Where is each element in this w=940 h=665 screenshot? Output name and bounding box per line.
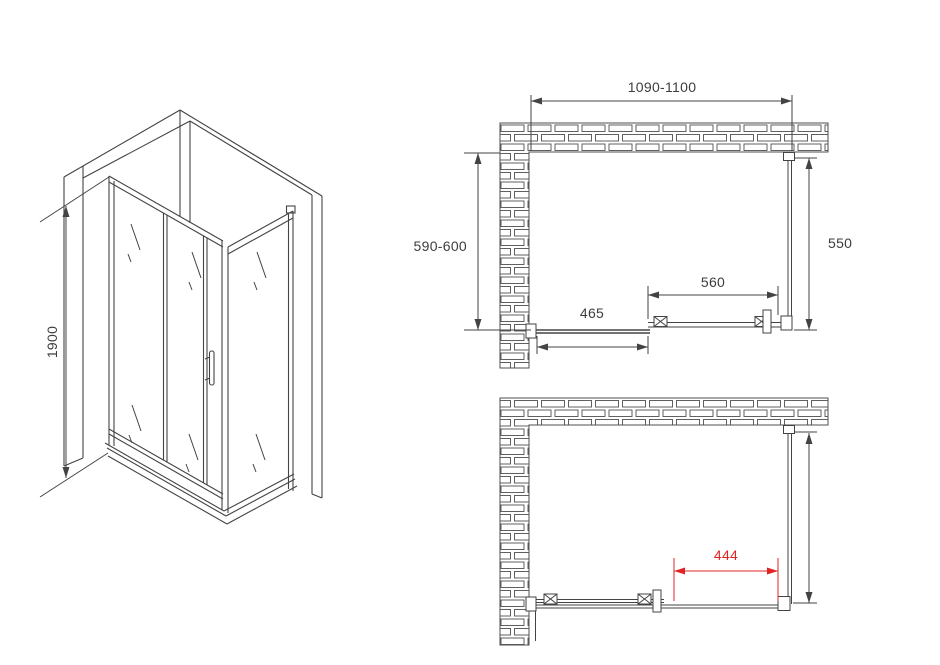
sliding-door-closed bbox=[648, 310, 792, 333]
plan-depth-label: 590-600 bbox=[414, 238, 467, 254]
plan-side-panel-label: 550 bbox=[828, 235, 852, 251]
iso-shower-tray bbox=[105, 443, 297, 524]
dimension-fixed-panel bbox=[537, 336, 648, 354]
dimension-side-panel-closed bbox=[794, 158, 817, 330]
plan-view-closed bbox=[464, 95, 828, 368]
iso-walls bbox=[64, 110, 322, 498]
dimension-opening bbox=[674, 558, 778, 601]
isometric-view bbox=[40, 110, 322, 524]
brick-wall-closed bbox=[500, 123, 828, 368]
dimension-side-panel-open bbox=[793, 432, 817, 603]
iso-door-handle bbox=[205, 351, 214, 385]
side-panel-closed bbox=[784, 153, 795, 331]
plan-width-label: 1090-1100 bbox=[628, 79, 697, 95]
side-panel-open bbox=[784, 426, 795, 605]
dimension-sliding-door bbox=[648, 286, 778, 319]
fixed-panel-closed bbox=[526, 324, 650, 338]
plan-sliding-door-label: 560 bbox=[701, 274, 725, 290]
shower-enclosure-technical-drawing: 1900 1090-1100 590-600 550 560 465 444 bbox=[0, 0, 940, 665]
plan-opening-label: 444 bbox=[714, 547, 738, 563]
iso-enclosure bbox=[109, 176, 295, 513]
iso-height-label: 1900 bbox=[44, 326, 60, 358]
plan-view-open bbox=[500, 398, 828, 645]
sliding-door-open bbox=[526, 590, 664, 641]
drawing-canvas bbox=[0, 0, 940, 665]
plan-fixed-panel-label: 465 bbox=[580, 305, 604, 321]
iso-glass-sparkles bbox=[128, 224, 266, 472]
